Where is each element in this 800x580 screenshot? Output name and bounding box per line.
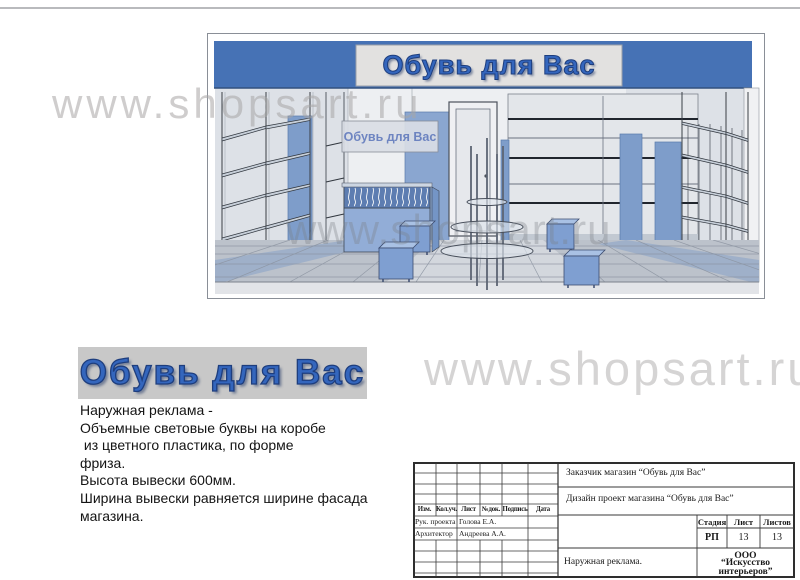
stamp-project: Дизайн проект магазина “Обувь для Вас” — [566, 495, 791, 505]
storefront-rendering: Обувь для Вас Обувь для Вас — [207, 33, 765, 299]
stamp-company-name: “Искусство интерьеров” — [697, 563, 794, 573]
logo-box: Обувь для Вас — [78, 347, 367, 399]
description-line: из цветного пластика, по форме — [80, 437, 425, 455]
stamp-col-data: Дата — [528, 504, 558, 516]
description-line: Объемные световые буквы на коробе — [80, 420, 425, 438]
stamp-sheet-value: 13 — [727, 530, 760, 546]
stamp-role-label: Архитектор — [415, 528, 453, 540]
stamp-sheets-label: Листов — [760, 516, 794, 528]
stamp-subject: Наружная реклама. — [564, 558, 642, 568]
stamp-role-name: Голова Е.А. — [459, 516, 496, 528]
stamp-stage-label: Стадия — [697, 516, 727, 528]
page: Обувь для Вас Обувь для Вас www.shopsart… — [0, 0, 800, 580]
stamp-sheet-label: Лист — [727, 516, 760, 528]
description-line: Ширина вывески равняется ширине фасада — [80, 490, 425, 508]
stamp-customer: Заказчик магазин “Обувь для Вас” — [566, 469, 791, 479]
stamp-role-label: Рук. проекта — [415, 516, 456, 528]
title-block: Изм. Кол.уч. Лист №док. Подпись Дата Рук… — [413, 462, 795, 578]
stamp-col-ndok: №док. — [480, 504, 502, 516]
fascia-sign-text: Обувь для Вас — [356, 45, 622, 86]
description-line: фриза. — [80, 455, 425, 473]
logo-text: Обувь для Вас — [80, 353, 365, 393]
stamp-col-podpis: Подпись — [502, 504, 528, 516]
stamp-col-izm: Изм. — [413, 504, 436, 516]
description-line: Высота вывески 600мм. — [80, 472, 425, 490]
watermark-middle: www.shopsart.ru — [424, 341, 800, 396]
stamp-col-koluch: Кол.уч. — [436, 504, 457, 516]
interior-sign-text: Обувь для Вас — [342, 121, 438, 152]
description-line: магазина. — [80, 508, 425, 526]
description-line: Наружная реклама - — [80, 402, 425, 420]
entrance-door — [449, 102, 497, 236]
advert-description: Наружная реклама - Объемные световые бук… — [80, 402, 425, 525]
page-top-edge — [0, 7, 800, 9]
stamp-stage-value: РП — [697, 530, 727, 546]
stamp-role-name: Андреева А.А. — [459, 528, 506, 540]
stamp-col-list: Лист — [457, 504, 480, 516]
stamp-sheets-value: 13 — [760, 530, 794, 546]
